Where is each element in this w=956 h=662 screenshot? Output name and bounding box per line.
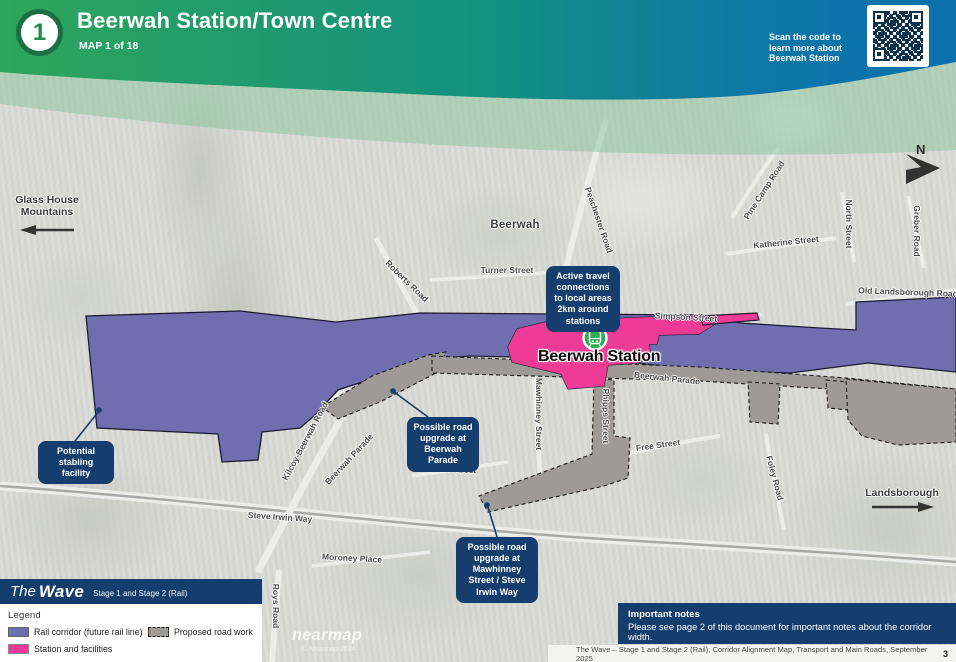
direction-label-landsborough: Landsborough xyxy=(860,487,944,499)
brand-wave: Wave xyxy=(39,582,84,602)
footer-text: The Wave – Stage 1 and Stage 2 (Rail), C… xyxy=(576,645,943,662)
qr-caption: Scan the code to learn more about Beerwa… xyxy=(769,32,857,64)
qr-finder-icon xyxy=(873,48,886,61)
page-title: Beerwah Station/Town Centre xyxy=(77,8,392,34)
nearmap-logo: nearmap xyxy=(292,627,362,645)
landsborough-arrow-icon xyxy=(872,502,934,512)
rail-corridor-swatch xyxy=(8,627,29,637)
legend-item-station: Station and facilities xyxy=(8,644,112,654)
north-arrow-icon xyxy=(906,154,940,184)
street-label: Phipps Street xyxy=(601,389,611,444)
north-label: N xyxy=(916,142,925,157)
legend-item-rail-corridor: Rail corridor (future rail line) xyxy=(8,627,143,637)
qr-finder-icon xyxy=(873,11,886,24)
qr-code xyxy=(867,5,929,67)
important-notes-body: Please see page 2 of this document for i… xyxy=(628,622,946,642)
map-number-badge: 1 xyxy=(16,9,63,56)
direction-label-glass-house-mountains: Glass House Mountains xyxy=(14,194,80,218)
callout-mawhinney-upgrade: Possible road upgrade at Mawhinney Stree… xyxy=(456,537,538,603)
street-label: Mawhinney Street xyxy=(534,378,544,450)
qr-pattern xyxy=(873,11,923,61)
road-work-swatch xyxy=(148,627,169,637)
legend-item-road-work: Proposed road work xyxy=(148,627,253,637)
station-name-label: Beerwah Station xyxy=(538,348,660,366)
street-label: North Street xyxy=(844,199,854,248)
document-page: Turner Street Simpson Street Old Landsbo… xyxy=(0,0,956,662)
legend-item-label: Rail corridor (future rail line) xyxy=(34,627,143,637)
street-label: Turner Street xyxy=(481,265,534,275)
map-count-label: MAP 1 of 18 xyxy=(79,40,138,52)
glass-house-arrow-icon xyxy=(20,225,74,235)
legend-item-label: Station and facilities xyxy=(34,644,112,654)
watermark: nearmap © Nearmap 2024 xyxy=(292,627,362,653)
legend-title: Legend xyxy=(8,610,41,621)
street-label: Greber Road xyxy=(912,205,922,257)
important-notes-title: Important notes xyxy=(628,609,946,620)
brand-stage-label: Stage 1 and Stage 2 (Rail) xyxy=(93,586,187,598)
town-label: Beerwah xyxy=(490,219,539,231)
the-wave-banner: The Wave Stage 1 and Stage 2 (Rail) xyxy=(0,579,262,604)
nearmap-copyright: © Nearmap 2024 xyxy=(302,646,362,653)
station-swatch xyxy=(8,644,29,654)
callout-stabling-facility: Potential stabling facility xyxy=(38,441,114,484)
legend-panel: Legend Rail corridor (future rail line) … xyxy=(0,604,262,662)
footer-bar: The Wave – Stage 1 and Stage 2 (Rail), C… xyxy=(548,645,956,662)
callout-beerwah-parade-upgrade: Possible road upgrade at Beerwah Parade xyxy=(407,417,479,472)
qr-finder-icon xyxy=(910,11,923,24)
street-label: Roys Road xyxy=(271,584,281,628)
callout-active-travel: Active travel connections to local areas… xyxy=(546,266,620,332)
legend-item-label: Proposed road work xyxy=(174,627,253,637)
page-number: 3 xyxy=(943,649,948,659)
brand-the: The xyxy=(10,583,36,600)
green-tint-band xyxy=(0,62,956,155)
important-notes-box: Important notes Please see page 2 of thi… xyxy=(618,603,956,644)
